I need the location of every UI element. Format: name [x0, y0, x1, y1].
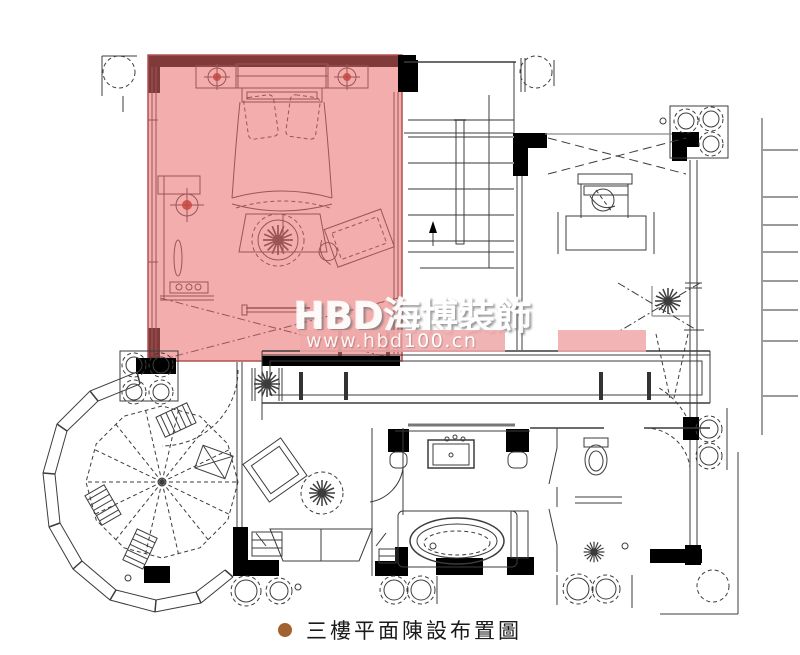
corridor-balcony: [252, 351, 710, 420]
door-swing-dashed: [659, 388, 686, 416]
toilet: [584, 438, 608, 475]
angled-chair: [243, 438, 307, 502]
bath-column: [511, 511, 528, 558]
caption-title: 三樓平面陳設布置圖: [306, 615, 522, 645]
column-southeast: [697, 570, 729, 602]
open-above-marker: [548, 138, 686, 174]
exterior-steps-east: [762, 118, 798, 435]
wc-plant: [584, 542, 605, 563]
caption: 三樓平面陳設布置圖: [0, 615, 800, 645]
staircase: [404, 56, 554, 268]
watermark-band-right: [558, 330, 646, 352]
column-pair-southwest: [231, 576, 301, 606]
study-desk-chair: [558, 174, 654, 254]
turret-chair: [85, 485, 121, 525]
sink: [428, 435, 474, 468]
study-plant: [652, 286, 690, 316]
turret-chair: [156, 403, 196, 437]
turret-outer-wall: [43, 372, 233, 612]
turret-door-arc: [162, 370, 238, 446]
study-window-wall: [684, 160, 704, 330]
bath-door-arc: [370, 468, 403, 502]
lounge-plant: [301, 472, 343, 514]
turret-chair: [123, 529, 157, 569]
stair-direction-arrow: [429, 221, 437, 233]
watermark-url: www.hbd100.cn: [300, 330, 505, 352]
corner-column-topleft: [102, 56, 137, 112]
column-pair-south-center: [557, 574, 632, 608]
parasol-table: [86, 406, 238, 558]
turret-sunroom: [43, 351, 238, 612]
east-wall: [659, 330, 738, 614]
wc-room: [530, 428, 710, 608]
caption-bullet-icon: [278, 623, 292, 637]
floorplan-page: HBD海博裝飾 www.hbd100.cn 三樓平面陳設布置圖: [0, 0, 800, 655]
corridor-plant: [254, 371, 280, 397]
study-room: [517, 106, 728, 398]
column-pair-south: [380, 576, 437, 604]
